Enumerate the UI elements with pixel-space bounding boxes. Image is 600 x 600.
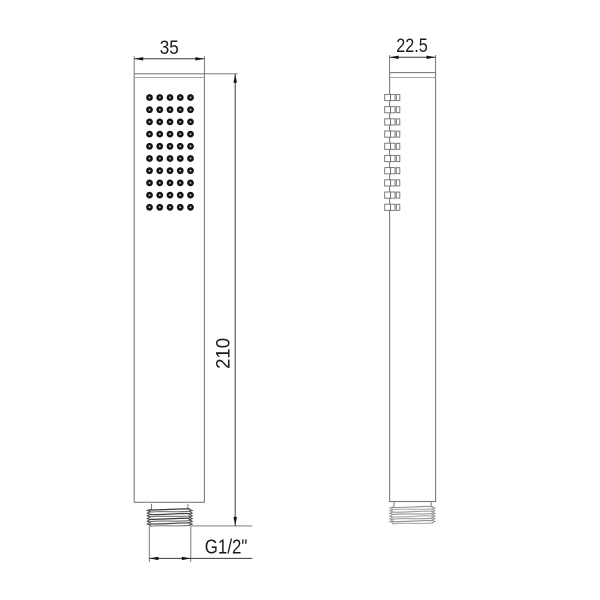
svg-text:G1/2": G1/2": [205, 536, 248, 559]
svg-text:35: 35: [160, 38, 179, 59]
svg-text:210: 210: [213, 338, 234, 369]
svg-text:22.5: 22.5: [396, 36, 428, 57]
